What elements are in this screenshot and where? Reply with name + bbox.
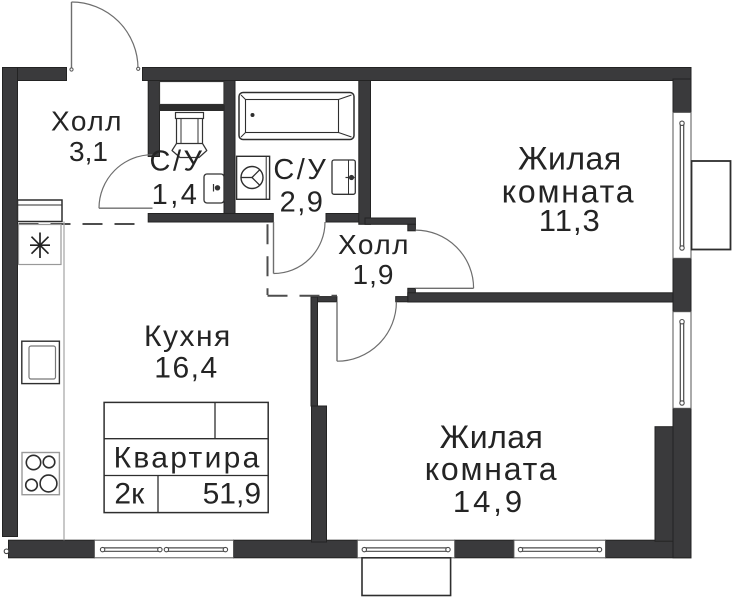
svg-text:2к: 2к bbox=[114, 478, 145, 511]
svg-text:14,9: 14,9 bbox=[453, 484, 525, 519]
svg-text:1,9: 1,9 bbox=[353, 259, 395, 290]
svg-text:С/У: С/У bbox=[150, 146, 205, 178]
svg-text:Жилая: Жилая bbox=[518, 140, 622, 176]
svg-text:Квартира: Квартира bbox=[114, 442, 262, 475]
svg-text:Кухня: Кухня bbox=[144, 320, 232, 353]
svg-text:С/У: С/У bbox=[273, 154, 328, 186]
svg-text:1,4: 1,4 bbox=[152, 179, 200, 211]
svg-text:3,1: 3,1 bbox=[69, 136, 108, 167]
svg-text:Холл: Холл bbox=[51, 106, 123, 137]
svg-text:комната: комната bbox=[425, 451, 559, 487]
svg-text:11,3: 11,3 bbox=[539, 203, 601, 238]
svg-text:2,9: 2,9 bbox=[280, 187, 325, 219]
svg-text:51,9: 51,9 bbox=[203, 478, 261, 511]
svg-text:Холл: Холл bbox=[338, 229, 410, 260]
svg-text:16,4: 16,4 bbox=[154, 352, 218, 385]
svg-text:Жилая: Жилая bbox=[440, 419, 544, 455]
